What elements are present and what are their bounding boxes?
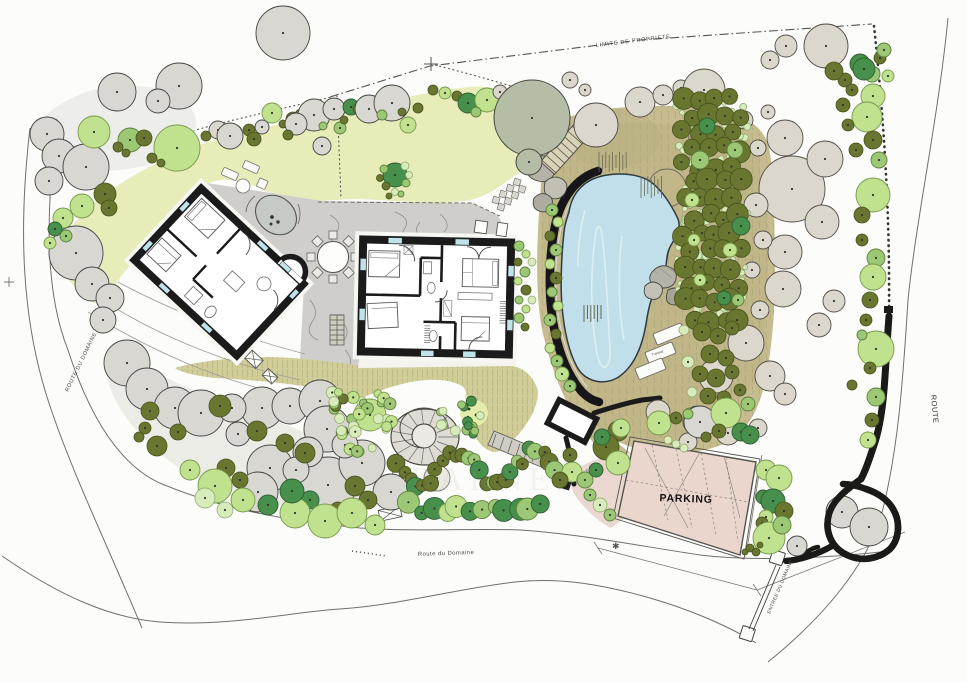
svg-text:✱: ✱ <box>612 541 620 551</box>
svg-text:BARNES: BARNES <box>410 461 580 498</box>
svg-text:PARKING: PARKING <box>659 492 713 506</box>
